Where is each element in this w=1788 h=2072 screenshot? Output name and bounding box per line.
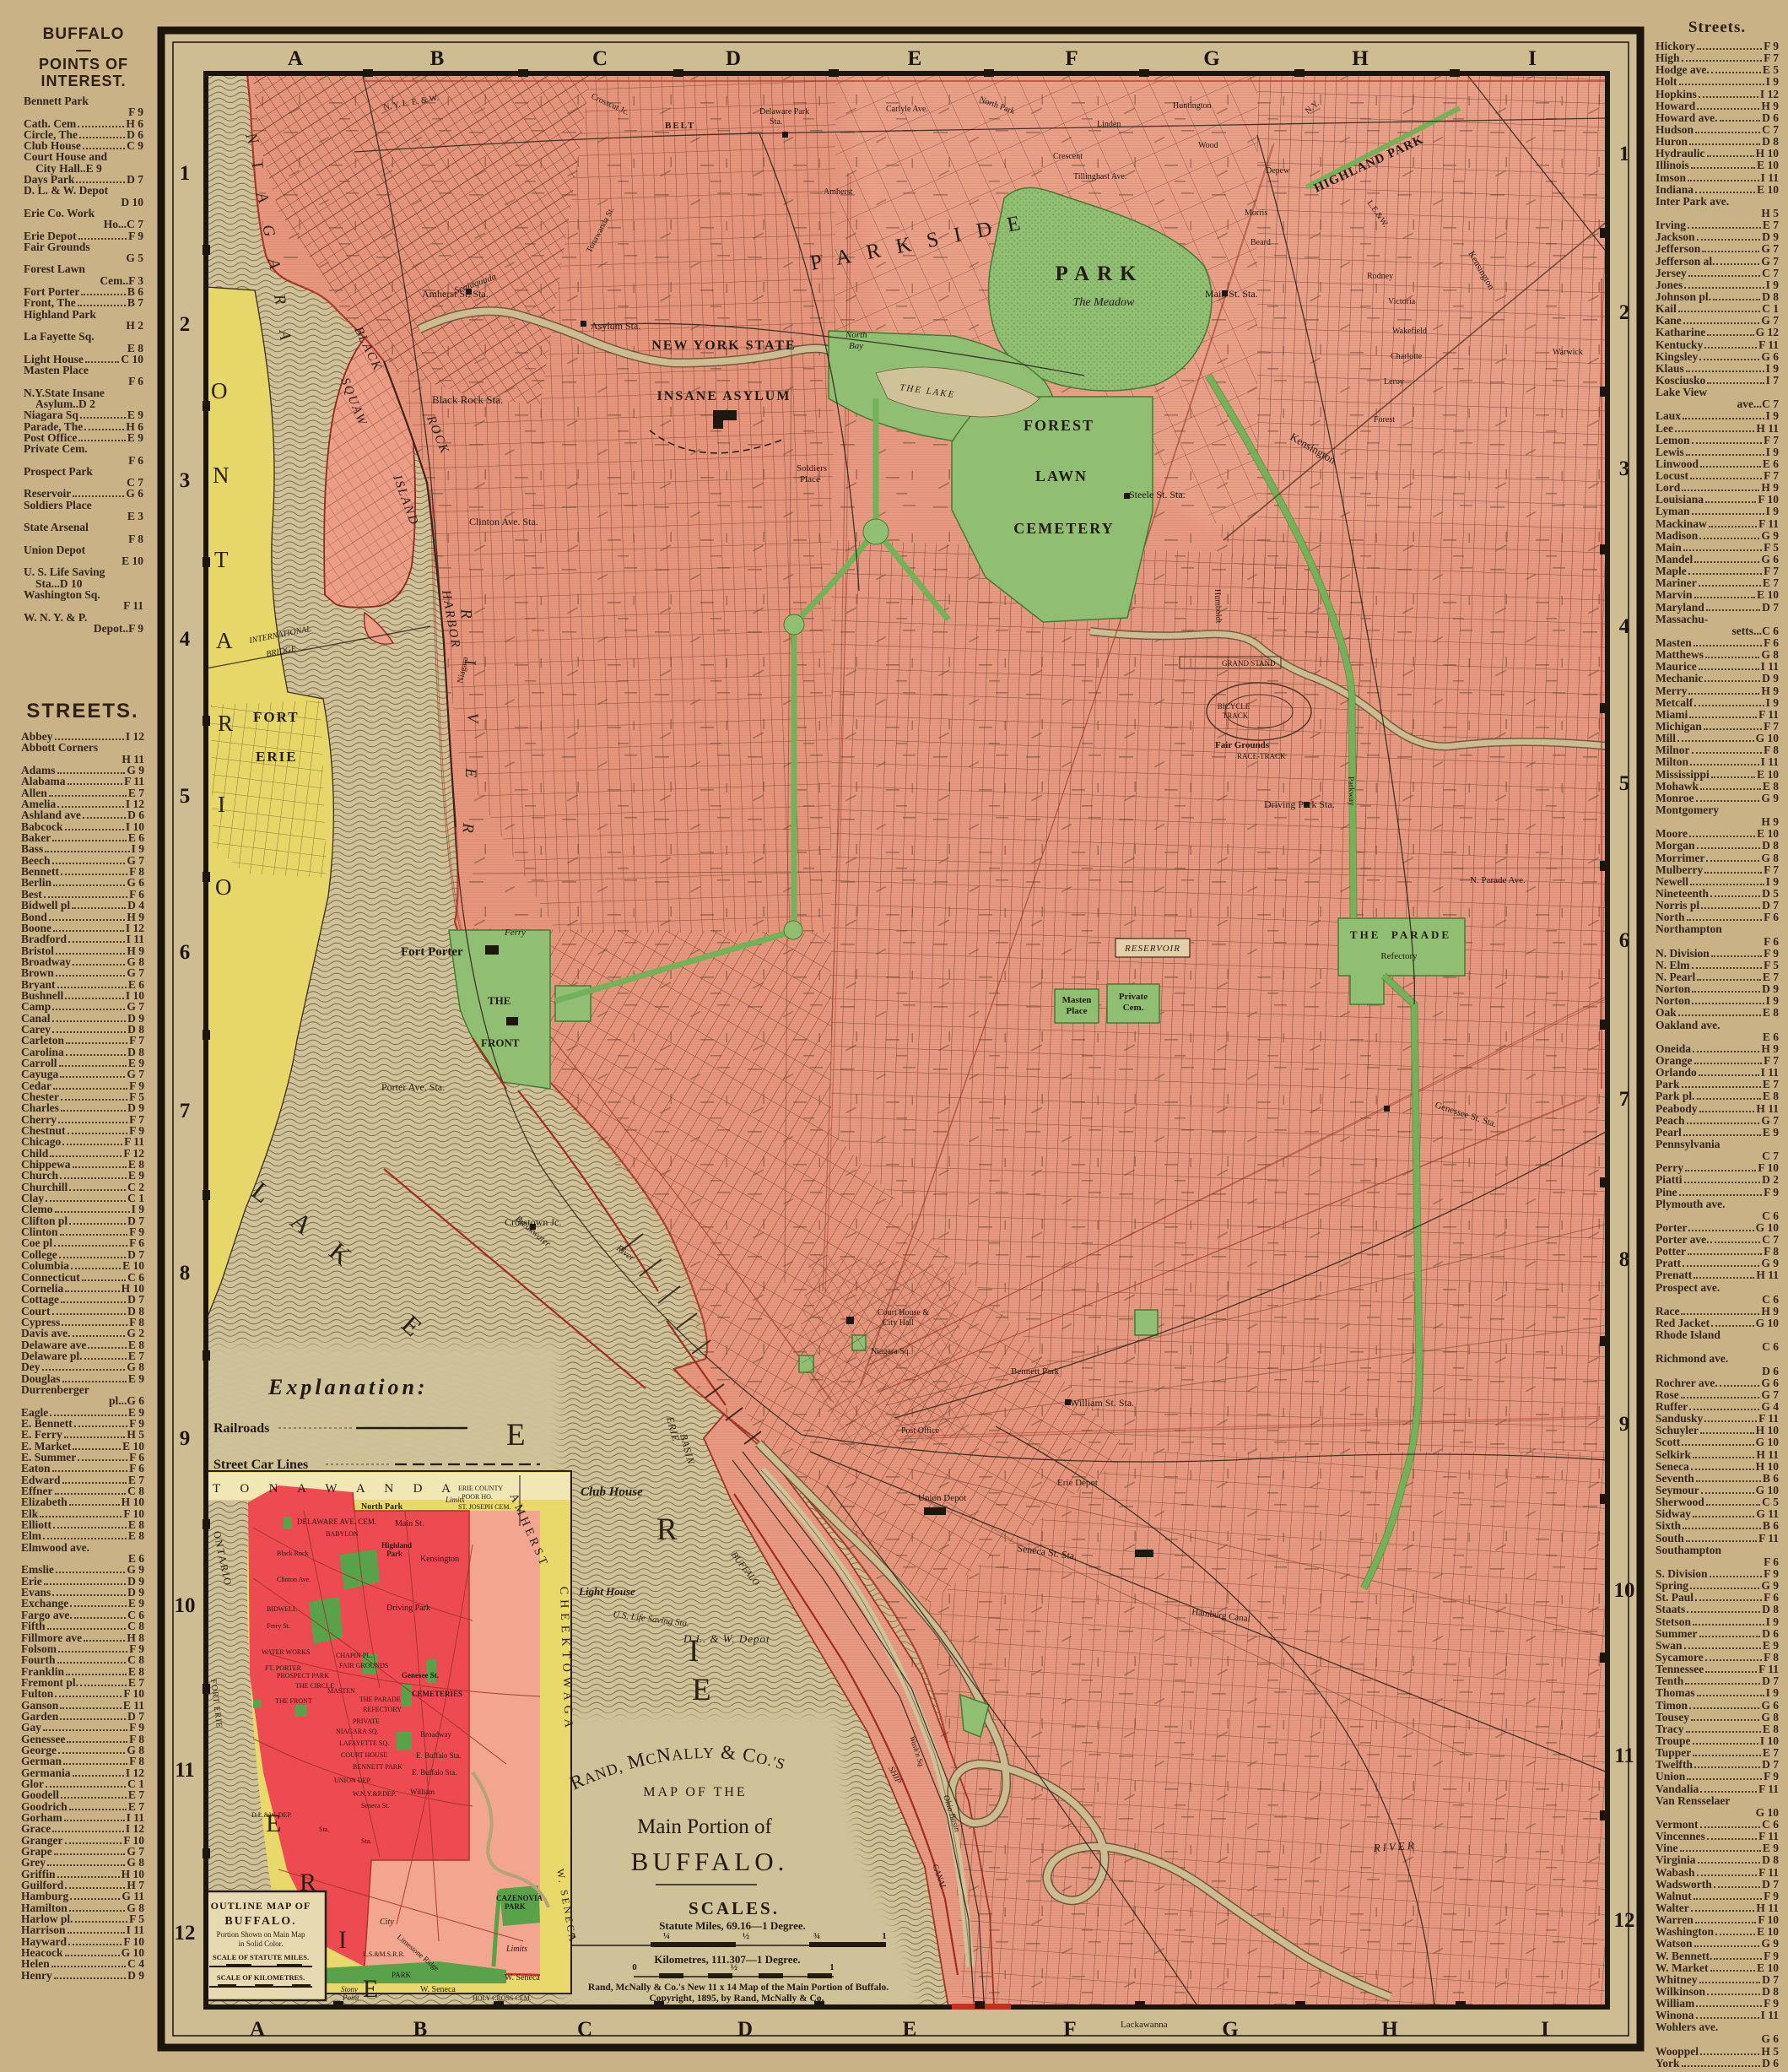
svg-text:Point: Point <box>342 1994 359 2002</box>
svg-text:WATER WORKS: WATER WORKS <box>262 1648 310 1656</box>
svg-text:North: North <box>845 330 867 340</box>
svg-text:Huntington: Huntington <box>1173 101 1212 111</box>
svg-text:R: R <box>218 711 233 736</box>
svg-text:BICYCLE: BICYCLE <box>1218 702 1251 711</box>
svg-text:Wood: Wood <box>1198 141 1218 150</box>
svg-text:3: 3 <box>1619 457 1630 480</box>
svg-text:Carlyle Ave.: Carlyle Ave. <box>886 105 928 114</box>
svg-text:R: R <box>459 822 477 834</box>
svg-text:THE PARADE: THE PARADE <box>1350 928 1451 941</box>
svg-text:Asylum Sta.: Asylum Sta. <box>591 320 640 332</box>
svg-text:E: E <box>506 1418 526 1453</box>
svg-text:1: 1 <box>882 1931 887 1941</box>
svg-text:I: I <box>338 1926 347 1954</box>
svg-text:DELAWARE AVE. CEM.: DELAWARE AVE. CEM. <box>297 1517 376 1526</box>
svg-text:E. Buffalo Sta.: E. Buffalo Sta. <box>416 1751 461 1760</box>
svg-text:Railroads: Railroads <box>213 1421 269 1436</box>
svg-text:Genesee St.: Genesee St. <box>402 1671 439 1680</box>
svg-text:Victoria: Victoria <box>1388 297 1416 306</box>
svg-text:Cem.: Cem. <box>1123 1003 1144 1013</box>
svg-text:E: E <box>363 1975 378 2003</box>
svg-text:Clinton Ave. Sta.: Clinton Ave. Sta. <box>469 516 538 527</box>
svg-text:Copyright, 1895, by Rand, McNa: Copyright, 1895, by Rand, McNally & Co. <box>649 1994 824 2004</box>
svg-text:T: T <box>214 547 229 572</box>
svg-text:Statute Miles, 69.16—1 Degree.: Statute Miles, 69.16—1 Degree. <box>659 1919 806 1932</box>
svg-text:5: 5 <box>180 785 191 808</box>
svg-text:FOREST: FOREST <box>1024 417 1094 434</box>
svg-text:0: 0 <box>632 1962 637 1972</box>
svg-text:Light House: Light House <box>578 1585 635 1598</box>
svg-text:½: ½ <box>743 1931 749 1941</box>
svg-text:F: F <box>1065 47 1078 70</box>
svg-text:TRACK: TRACK <box>1223 711 1249 720</box>
svg-text:2: 2 <box>180 313 191 336</box>
svg-text:City Hall: City Hall <box>883 1318 914 1328</box>
svg-text:Court House &: Court House & <box>878 1308 929 1317</box>
svg-text:I: I <box>218 792 225 817</box>
svg-text:7: 7 <box>180 1100 191 1123</box>
svg-text:C: C <box>592 47 608 70</box>
svg-text:Linden: Linden <box>1097 120 1121 129</box>
svg-text:O: O <box>215 874 232 900</box>
svg-text:Private: Private <box>1119 992 1148 1002</box>
svg-text:Club House: Club House <box>581 1485 643 1499</box>
svg-text:RACE-TRACK: RACE-TRACK <box>1237 752 1286 760</box>
svg-text:Black Rock Sta.: Black Rock Sta. <box>432 393 503 406</box>
svg-text:H: H <box>1381 2018 1398 2041</box>
svg-text:FORT: FORT <box>253 709 300 725</box>
svg-text:6: 6 <box>180 941 191 964</box>
svg-text:William St. Sta.: William St. Sta. <box>1070 1397 1134 1409</box>
svg-text:12: 12 <box>1614 1909 1635 1932</box>
svg-text:Fort Porter: Fort Porter <box>401 945 463 959</box>
svg-text:Sta.: Sta. <box>319 1826 329 1833</box>
svg-text:MAP OF THE: MAP OF THE <box>643 1785 747 1799</box>
svg-text:FT. PORTER: FT. PORTER <box>265 1664 302 1672</box>
svg-text:POOR HO.: POOR HO. <box>462 1493 493 1501</box>
svg-text:T O N A W A N D A: T O N A W A N D A <box>213 1482 451 1496</box>
svg-text:PROSPECT PARK: PROSPECT PARK <box>277 1672 329 1680</box>
svg-text:Crescent: Crescent <box>1053 152 1083 161</box>
svg-text:1: 1 <box>829 1962 835 1972</box>
svg-text:10: 10 <box>175 1594 196 1617</box>
svg-text:NEW YORK STATE: NEW YORK STATE <box>651 338 796 353</box>
svg-text:CEMETERY: CEMETERY <box>1013 520 1114 537</box>
svg-text:Morris: Morris <box>1245 208 1267 218</box>
svg-text:LAFAYETTE SQ.: LAFAYETTE SQ. <box>339 1739 389 1747</box>
svg-text:8: 8 <box>1619 1248 1630 1271</box>
svg-text:ERIE COUNTY: ERIE COUNTY <box>458 1485 503 1492</box>
svg-text:Forest: Forest <box>1374 415 1395 425</box>
svg-text:¼: ¼ <box>663 1931 670 1941</box>
svg-text:SCALE OF STATUTE MILES.: SCALE OF STATUTE MILES. <box>213 1953 309 1961</box>
svg-text:HOLY CROSS CEM.: HOLY CROSS CEM. <box>473 1994 532 2002</box>
svg-text:Place: Place <box>800 474 820 484</box>
svg-text:11: 11 <box>175 1759 195 1782</box>
svg-text:8: 8 <box>180 1262 191 1285</box>
svg-text:NIAGARA SQ.: NIAGARA SQ. <box>336 1728 379 1735</box>
svg-text:W. Seneca: W. Seneca <box>505 1973 540 1983</box>
svg-text:D.L. & W. Depot: D.L. & W. Depot <box>683 1632 770 1645</box>
svg-text:L.S.&M.S.R.R.: L.S.&M.S.R.R. <box>363 1950 405 1958</box>
svg-text:Bennett Park: Bennett Park <box>1011 1366 1060 1377</box>
svg-text:Main Portion of: Main Portion of <box>637 1815 772 1838</box>
svg-text:9: 9 <box>180 1427 191 1450</box>
svg-text:C: C <box>577 2018 592 2041</box>
svg-text:LAWN: LAWN <box>1035 468 1088 484</box>
svg-text:PARK: PARK <box>392 1971 412 1979</box>
svg-text:12: 12 <box>175 1922 196 1945</box>
svg-text:F: F <box>1063 2018 1076 2041</box>
svg-text:Broadway: Broadway <box>420 1730 451 1739</box>
svg-text:3: 3 <box>180 469 191 492</box>
svg-text:11: 11 <box>1614 1745 1634 1767</box>
svg-text:4: 4 <box>180 628 191 651</box>
svg-text:Steele St. Sta.: Steele St. Sta. <box>1129 489 1186 500</box>
svg-text:D: D <box>737 2018 753 2041</box>
svg-text:Niagara Sq.: Niagara Sq. <box>871 1347 910 1356</box>
svg-text:Kensington: Kensington <box>420 1555 459 1564</box>
svg-text:Amherst: Amherst <box>824 187 853 197</box>
svg-text:The Meadow: The Meadow <box>1073 296 1135 309</box>
svg-text:FRONT: FRONT <box>481 1036 520 1049</box>
svg-text:BIDWELL: BIDWELL <box>267 1605 297 1613</box>
svg-text:W. Seneca: W. Seneca <box>420 1985 456 1994</box>
svg-text:Beard: Beard <box>1251 238 1271 247</box>
svg-text:H: H <box>1352 47 1369 70</box>
svg-text:Explanation:: Explanation: <box>267 1375 429 1399</box>
svg-text:Street Car Lines: Street Car Lines <box>213 1458 308 1472</box>
svg-text:I: I <box>1528 47 1537 70</box>
svg-text:CEMETERIES: CEMETERIES <box>412 1690 462 1698</box>
svg-text:in Solid Color.: in Solid Color. <box>239 1939 284 1948</box>
svg-text:Clinton Ave.: Clinton Ave. <box>277 1576 311 1583</box>
svg-text:E: E <box>692 1673 711 1707</box>
svg-text:Park: Park <box>386 1550 402 1558</box>
svg-text:ERIE: ERIE <box>256 749 298 765</box>
svg-text:THE FRONT: THE FRONT <box>275 1697 312 1705</box>
svg-text:Sta.: Sta. <box>361 1837 371 1845</box>
svg-text:BENNETT PARK: BENNETT PARK <box>353 1763 402 1771</box>
svg-text:Rodney: Rodney <box>1367 272 1393 281</box>
svg-text:PRIVATE: PRIVATE <box>353 1718 380 1725</box>
svg-text:Humboldt: Humboldt <box>1213 589 1223 624</box>
svg-text:Main St.: Main St. <box>395 1519 424 1528</box>
svg-text:9: 9 <box>1619 1413 1630 1436</box>
svg-text:Portion Shown on Main Map: Portion Shown on Main Map <box>216 1930 305 1939</box>
svg-text:PARK: PARK <box>1056 262 1144 285</box>
svg-text:Black Rock: Black Rock <box>277 1550 309 1557</box>
svg-text:Ferry St.: Ferry St. <box>267 1622 290 1630</box>
svg-text:Wakefield: Wakefield <box>1392 327 1427 336</box>
svg-text:A: A <box>288 47 303 70</box>
svg-text:Main St. Sta.: Main St. Sta. <box>1205 288 1258 300</box>
svg-text:North Park: North Park <box>361 1502 403 1512</box>
svg-text:Bay: Bay <box>849 341 863 351</box>
svg-text:R: R <box>656 1512 678 1547</box>
svg-text:Stony: Stony <box>341 1985 358 1994</box>
svg-text:ST. JOSEPH CEM.: ST. JOSEPH CEM. <box>458 1503 511 1511</box>
svg-text:6: 6 <box>1619 929 1630 952</box>
svg-text:½: ½ <box>731 1962 737 1972</box>
svg-text:R: R <box>456 607 475 619</box>
svg-text:D.L.&W. DEP.: D.L.&W. DEP. <box>251 1811 292 1819</box>
svg-text:INSANE ASYLUM: INSANE ASYLUM <box>657 389 791 403</box>
svg-text:SCALE OF KILOMETRES.: SCALE OF KILOMETRES. <box>217 1973 305 1982</box>
svg-text:2: 2 <box>1619 301 1630 324</box>
svg-text:5: 5 <box>1619 772 1630 795</box>
svg-text:MASTEN: MASTEN <box>327 1687 355 1695</box>
svg-text:Porter Ave. Sta.: Porter Ave. Sta. <box>381 1081 445 1093</box>
svg-text:Limits: Limits <box>505 1945 527 1954</box>
svg-text:BUFFALO.: BUFFALO. <box>224 1915 296 1928</box>
svg-text:THE: THE <box>488 994 510 1007</box>
svg-text:CHAPIN PL.: CHAPIN PL. <box>336 1652 372 1659</box>
svg-text:10: 10 <box>1614 1579 1635 1602</box>
svg-text:B: B <box>413 2018 428 2041</box>
svg-text:Refectory: Refectory <box>1380 951 1418 961</box>
svg-text:B: B <box>430 47 445 70</box>
svg-text:FAIR GROUNDS: FAIR GROUNDS <box>339 1662 388 1669</box>
svg-text:RESERVOIR: RESERVOIR <box>1124 944 1180 954</box>
svg-text:Depew: Depew <box>1266 166 1290 176</box>
svg-text:OUTLINE MAP OF: OUTLINE MAP OF <box>211 1900 311 1912</box>
svg-text:I: I <box>1541 2018 1549 2041</box>
svg-text:City: City <box>380 1918 394 1927</box>
svg-text:SCALES.: SCALES. <box>689 1898 780 1918</box>
svg-text:Seneca St.: Seneca St. <box>361 1802 389 1810</box>
svg-text:Place: Place <box>1066 1006 1087 1016</box>
svg-text:BELT: BELT <box>665 121 695 131</box>
svg-text:BUFFALO.: BUFFALO. <box>631 1847 789 1876</box>
svg-text:Rand, McNally & Co.'s New 11 x: Rand, McNally & Co.'s New 11 x 14 Map of… <box>588 1983 889 1993</box>
svg-text:0: 0 <box>570 1931 575 1941</box>
svg-text:A: A <box>216 628 233 653</box>
svg-text:E: E <box>462 767 479 778</box>
svg-text:A: A <box>250 2018 265 2041</box>
svg-text:1: 1 <box>180 162 191 185</box>
svg-text:4: 4 <box>1619 615 1630 638</box>
svg-text:E: E <box>908 47 922 70</box>
svg-text:Ferry: Ferry <box>504 928 526 938</box>
svg-text:Union Depot: Union Depot <box>918 1493 966 1503</box>
svg-text:Sta.: Sta. <box>770 117 782 127</box>
svg-text:Driving Park: Driving Park <box>386 1604 430 1613</box>
svg-text:REFECTORY: REFECTORY <box>363 1706 402 1713</box>
svg-text:Highland: Highland <box>381 1541 412 1550</box>
svg-text:William: William <box>410 1788 435 1796</box>
svg-text:Fair Grounds: Fair Grounds <box>1215 740 1270 750</box>
svg-text:Warwick: Warwick <box>1553 348 1583 357</box>
svg-text:D: D <box>726 47 741 70</box>
svg-text:PARK: PARK <box>505 1902 526 1911</box>
svg-text:¾: ¾ <box>813 1931 820 1941</box>
svg-text:Charlotte: Charlotte <box>1391 352 1423 361</box>
svg-text:Parkway: Parkway <box>1346 776 1356 806</box>
svg-text:N: N <box>213 463 230 488</box>
svg-text:Tillinghast Ave.: Tillinghast Ave. <box>1073 172 1126 181</box>
svg-text:1: 1 <box>1619 143 1630 165</box>
svg-text:G: G <box>1203 47 1219 70</box>
svg-text:Lackawanna: Lackawanna <box>1121 2020 1168 2030</box>
svg-text:Soldiers: Soldiers <box>797 463 827 473</box>
svg-text:Erie Depot: Erie Depot <box>1057 1478 1098 1488</box>
svg-text:E. Buffalo Sta.: E. Buffalo Sta. <box>412 1768 456 1777</box>
svg-text:UNION DEP.: UNION DEP. <box>334 1777 371 1784</box>
svg-text:GRAND STAND: GRAND STAND <box>1222 659 1276 668</box>
svg-text:BABYLON: BABYLON <box>326 1530 359 1538</box>
svg-text:W.N.Y.&P.DEP.: W.N.Y.&P.DEP. <box>353 1790 396 1798</box>
svg-text:Delaware Park: Delaware Park <box>759 107 809 116</box>
svg-text:Driving Park Sta.: Driving Park Sta. <box>1264 798 1335 810</box>
svg-text:Kilometres, 111.307—1 Degree.: Kilometres, 111.307—1 Degree. <box>654 1953 800 1966</box>
svg-text:G: G <box>1222 2018 1238 2041</box>
svg-text:N. Parade Ave.: N. Parade Ave. <box>1470 875 1526 885</box>
svg-text:Masten: Masten <box>1062 995 1092 1005</box>
svg-text:R: R <box>300 1869 316 1896</box>
svg-text:COURT HOUSE: COURT HOUSE <box>341 1751 387 1759</box>
svg-text:O: O <box>211 378 228 403</box>
svg-text:THE PARADE: THE PARADE <box>359 1696 401 1703</box>
svg-text:Post Office: Post Office <box>901 1426 940 1436</box>
svg-text:E: E <box>903 2018 917 2041</box>
svg-text:CAZENOVIA: CAZENOVIA <box>496 1894 543 1902</box>
svg-text:Leroy: Leroy <box>1384 377 1404 387</box>
svg-text:7: 7 <box>1619 1088 1630 1111</box>
